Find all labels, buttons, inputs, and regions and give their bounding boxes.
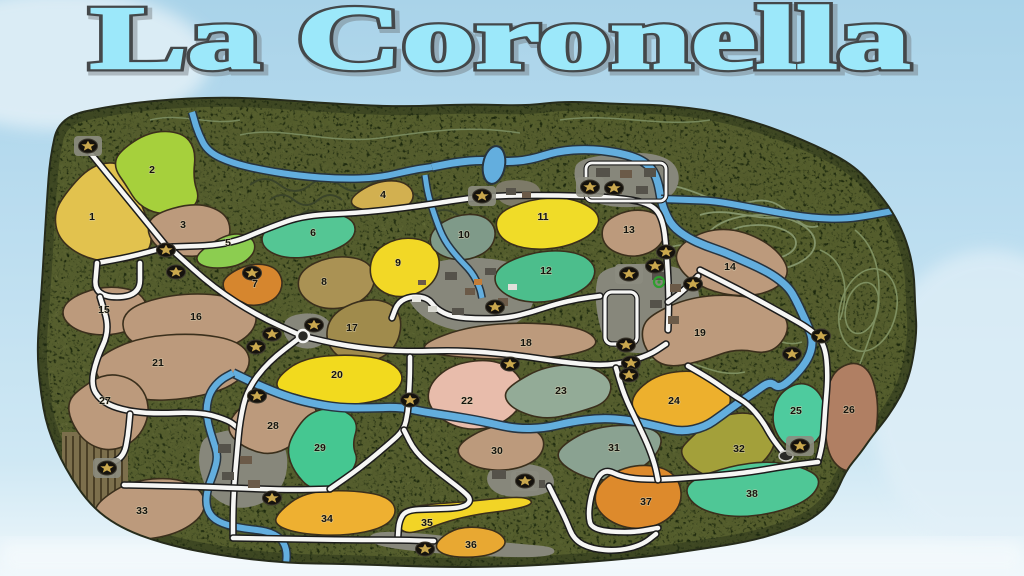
- svg-text:27: 27: [99, 395, 111, 407]
- svg-text:35: 35: [421, 517, 433, 529]
- svg-text:16: 16: [190, 311, 202, 323]
- svg-text:3: 3: [180, 219, 186, 231]
- svg-text:14: 14: [724, 261, 736, 273]
- svg-text:36: 36: [465, 539, 477, 551]
- svg-text:17: 17: [346, 322, 358, 334]
- svg-text:6: 6: [310, 227, 316, 239]
- svg-text:22: 22: [461, 395, 473, 407]
- svg-text:9: 9: [395, 257, 401, 269]
- svg-text:10: 10: [458, 229, 470, 241]
- svg-text:La Coronella: La Coronella: [90, 0, 910, 88]
- svg-text:28: 28: [267, 420, 279, 432]
- svg-text:34: 34: [321, 513, 333, 525]
- svg-text:4: 4: [380, 189, 386, 201]
- svg-text:24: 24: [668, 395, 680, 407]
- svg-text:20: 20: [331, 369, 343, 381]
- svg-text:7: 7: [252, 278, 258, 290]
- svg-text:21: 21: [152, 357, 164, 369]
- svg-text:5: 5: [225, 237, 231, 249]
- svg-text:19: 19: [694, 327, 706, 339]
- svg-text:18: 18: [520, 337, 532, 349]
- svg-text:29: 29: [314, 442, 326, 454]
- svg-text:23: 23: [555, 385, 567, 397]
- svg-text:30: 30: [491, 445, 503, 457]
- svg-text:26: 26: [843, 404, 855, 416]
- svg-text:32: 32: [733, 443, 745, 455]
- svg-text:15: 15: [98, 304, 110, 316]
- svg-text:1: 1: [89, 211, 95, 223]
- svg-text:37: 37: [640, 496, 652, 508]
- svg-text:8: 8: [321, 276, 327, 288]
- svg-text:2: 2: [149, 164, 155, 176]
- svg-text:31: 31: [608, 442, 620, 454]
- svg-text:11: 11: [537, 211, 548, 223]
- svg-text:33: 33: [136, 505, 148, 517]
- svg-text:13: 13: [623, 224, 635, 236]
- svg-text:12: 12: [540, 265, 552, 277]
- svg-text:38: 38: [746, 488, 758, 500]
- svg-text:25: 25: [790, 405, 802, 417]
